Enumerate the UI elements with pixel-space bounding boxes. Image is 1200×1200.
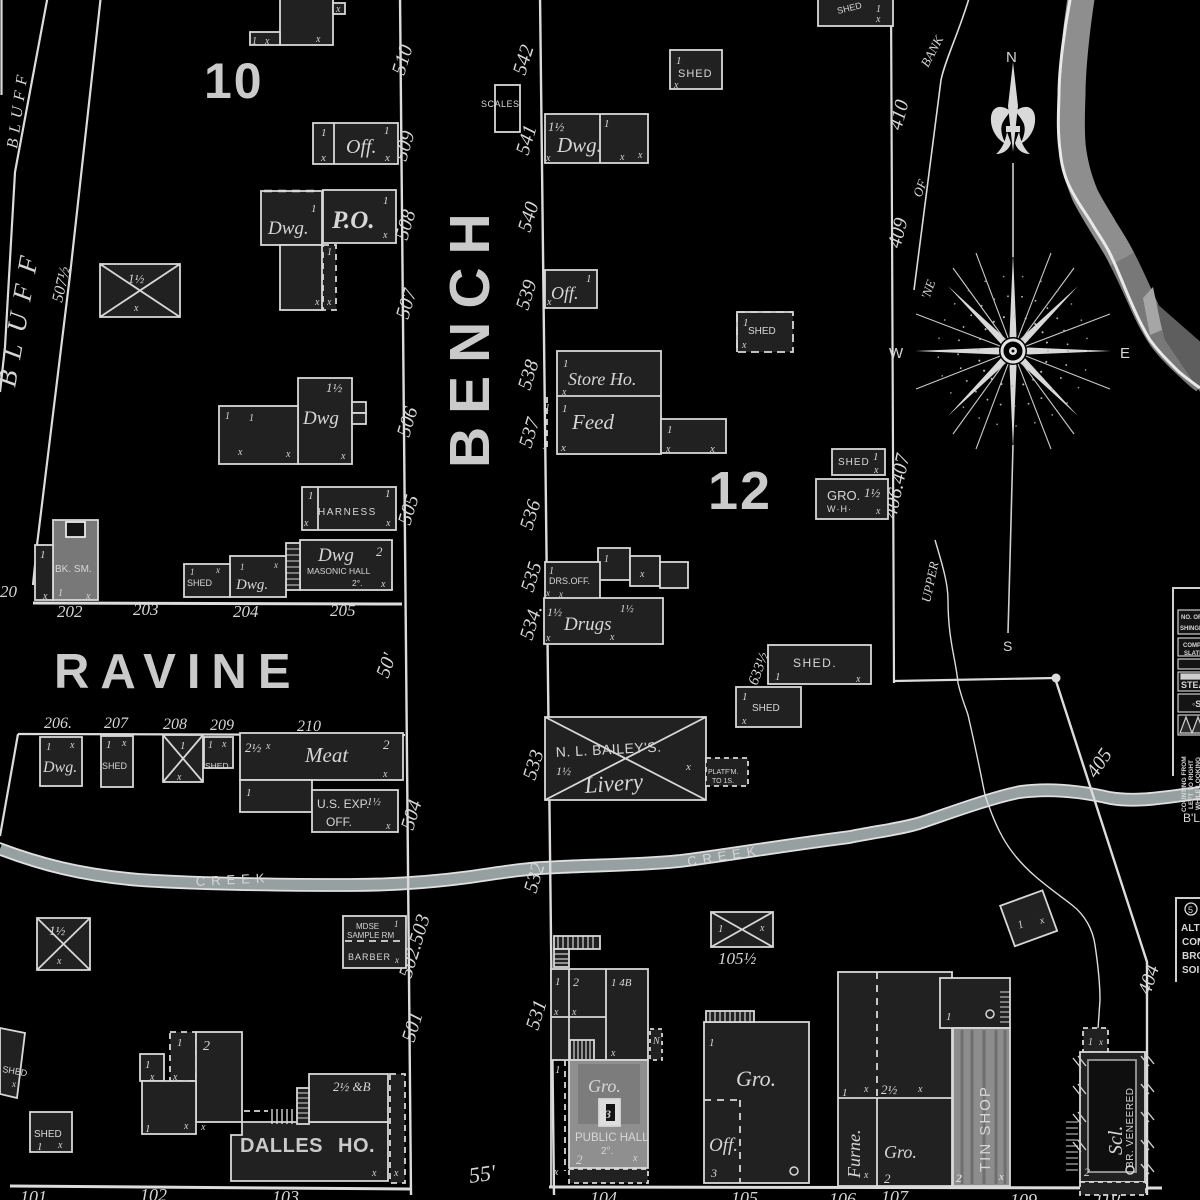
- svg-text:x: x: [315, 34, 321, 45]
- svg-text:SHED: SHED: [205, 761, 229, 771]
- svg-text:BR. VENEERED: BR. VENEERED: [1125, 1088, 1136, 1168]
- svg-text:x: x: [610, 1048, 616, 1059]
- svg-text:SHINGL: SHINGL: [1180, 626, 1200, 632]
- svg-text:Off.: Off.: [551, 283, 579, 303]
- svg-text:1: 1: [252, 36, 257, 47]
- svg-text:x: x: [335, 4, 341, 15]
- svg-text:1: 1: [1088, 1037, 1093, 1048]
- svg-text:Dwg.: Dwg.: [235, 577, 268, 593]
- svg-text:1½: 1½: [326, 380, 343, 395]
- svg-text:1: 1: [842, 1087, 848, 1099]
- svg-text:x: x: [546, 297, 552, 308]
- svg-text:E: E: [1120, 345, 1130, 362]
- svg-text:Dwg.: Dwg.: [42, 759, 77, 776]
- svg-text:RAVINE: RAVINE: [54, 645, 302, 699]
- svg-text:x: x: [215, 565, 220, 575]
- svg-text:1: 1: [604, 118, 610, 130]
- svg-text:x: x: [609, 632, 615, 643]
- svg-text:1 4B: 1 4B: [611, 977, 632, 989]
- svg-text:P.O.: P.O.: [331, 207, 375, 234]
- svg-text:1: 1: [946, 1011, 952, 1023]
- svg-text:12: 12: [708, 461, 772, 521]
- svg-text:x: x: [558, 589, 563, 599]
- svg-text:x: x: [863, 1170, 869, 1181]
- svg-text:x: x: [326, 297, 332, 308]
- svg-text:x: x: [542, 441, 547, 451]
- svg-text:x: x: [221, 739, 227, 750]
- svg-text:x: x: [11, 1079, 16, 1089]
- svg-text:2½ &B: 2½ &B: [333, 1079, 371, 1094]
- svg-text:SHED: SHED: [838, 457, 870, 468]
- svg-text:x: x: [42, 591, 48, 602]
- svg-text:ALT: ALT: [1181, 923, 1200, 934]
- svg-text:N: N: [652, 1036, 661, 1047]
- svg-text:1½: 1½: [128, 271, 145, 286]
- svg-text:SHED: SHED: [187, 578, 213, 588]
- svg-text:x: x: [545, 588, 550, 598]
- svg-text:1: 1: [37, 1141, 43, 1153]
- svg-text:2°.: 2°.: [601, 1146, 613, 1157]
- svg-text:Feed: Feed: [571, 410, 614, 434]
- svg-text:MDSE: MDSE: [356, 922, 379, 931]
- svg-text:x: x: [553, 1007, 559, 1018]
- svg-text:x: x: [264, 36, 270, 47]
- svg-text:1: 1: [190, 567, 195, 577]
- svg-text:BARBER: BARBER: [348, 952, 391, 962]
- svg-text:Drugs: Drugs: [563, 614, 612, 635]
- svg-text:1½: 1½: [864, 485, 881, 500]
- svg-text:x: x: [285, 449, 291, 460]
- svg-text:x: x: [382, 769, 388, 780]
- svg-text:1: 1: [385, 488, 391, 500]
- svg-text:x: x: [998, 1172, 1004, 1183]
- svg-text:Dwg.: Dwg.: [267, 218, 309, 239]
- svg-text:Scl.: Scl.: [1105, 1126, 1127, 1155]
- svg-text:LEFT TO RIGHT: LEFT TO RIGHT: [1188, 760, 1195, 809]
- svg-text:1: 1: [667, 424, 673, 436]
- svg-text:1: 1: [240, 562, 245, 572]
- svg-text:Gro.: Gro.: [736, 1066, 776, 1091]
- svg-text:x: x: [875, 14, 881, 25]
- svg-text:COMP: COMP: [1183, 643, 1200, 649]
- svg-text:2: 2: [573, 975, 579, 989]
- svg-text:SHED: SHED: [752, 703, 780, 714]
- svg-text:Dwg: Dwg: [302, 408, 339, 429]
- svg-text:104.: 104.: [590, 1188, 622, 1200]
- svg-text:B'L: B'L: [1183, 811, 1200, 825]
- svg-text:x: x: [237, 447, 243, 458]
- svg-text:x: x: [303, 518, 309, 529]
- svg-text:1: 1: [308, 490, 314, 502]
- svg-text:SHED: SHED: [34, 1129, 62, 1140]
- svg-text:2½: 2½: [881, 1082, 898, 1097]
- svg-text:x: x: [545, 633, 551, 644]
- svg-text:1: 1: [742, 691, 748, 703]
- svg-text:1: 1: [604, 554, 609, 565]
- svg-text:Dwg: Dwg: [317, 545, 354, 566]
- svg-text:x: x: [553, 1167, 559, 1178]
- svg-text:Dwg.: Dwg.: [556, 133, 602, 157]
- svg-text:x: x: [69, 740, 75, 751]
- svg-text:106: 106: [829, 1189, 856, 1200]
- svg-text:x: x: [673, 80, 679, 91]
- svg-text:x: x: [873, 465, 879, 476]
- svg-text:203: 203: [133, 600, 159, 619]
- svg-text:x: x: [917, 1084, 923, 1095]
- svg-text:209: 209: [210, 717, 234, 734]
- svg-text:1: 1: [246, 787, 252, 799]
- svg-text:x: x: [176, 772, 182, 783]
- svg-text:x: x: [741, 716, 747, 727]
- svg-text:2: 2: [576, 1152, 583, 1167]
- svg-text:1: 1: [145, 1123, 151, 1135]
- svg-text:x: x: [741, 340, 747, 351]
- svg-text:S: S: [1003, 638, 1012, 654]
- svg-text:202: 202: [57, 602, 83, 621]
- svg-text:1: 1: [563, 358, 569, 370]
- svg-text:x: x: [384, 152, 390, 164]
- svg-text:1: 1: [321, 127, 327, 139]
- svg-text:Off.: Off.: [346, 136, 377, 158]
- svg-text:3: 3: [710, 1166, 717, 1180]
- svg-text:x: x: [340, 451, 346, 462]
- svg-text:x: x: [133, 303, 139, 314]
- svg-text:x: x: [183, 1121, 189, 1132]
- svg-text:1: 1: [46, 741, 52, 753]
- svg-text:SHED.: SHED.: [793, 656, 837, 670]
- svg-text:x: x: [385, 821, 391, 832]
- svg-text:2: 2: [376, 544, 383, 559]
- svg-text:1: 1: [545, 403, 550, 414]
- svg-text:2: 2: [1084, 1165, 1090, 1179]
- svg-text:Gro.: Gro.: [884, 1142, 917, 1162]
- svg-text:COUNTING FROM: COUNTING FROM: [1181, 756, 1188, 812]
- svg-text:208: 208: [163, 716, 187, 733]
- svg-text:x: x: [759, 923, 765, 934]
- svg-text:205: 205: [330, 601, 356, 620]
- svg-text:BRO: BRO: [1182, 951, 1200, 962]
- svg-text:x: x: [85, 591, 91, 602]
- svg-text:x: x: [57, 1140, 63, 1151]
- svg-text:HO.: HO.: [338, 1135, 375, 1157]
- svg-text:1: 1: [311, 203, 317, 215]
- svg-text:1: 1: [383, 195, 389, 207]
- svg-text:1: 1: [394, 919, 399, 929]
- svg-text:PLATF'M.: PLATF'M.: [708, 769, 738, 776]
- svg-text:x: x: [172, 1072, 178, 1083]
- svg-text:1: 1: [208, 740, 213, 751]
- svg-text:W·H·: W·H·: [827, 504, 852, 514]
- svg-text:x: x: [265, 741, 271, 752]
- svg-text:1: 1: [555, 976, 561, 988]
- svg-text:1: 1: [249, 413, 254, 424]
- svg-text:x: x: [709, 443, 715, 455]
- svg-text:Furne.: Furne.: [844, 1130, 864, 1180]
- svg-text:MASONIC HALL: MASONIC HALL: [307, 566, 371, 576]
- svg-text:x: x: [637, 150, 643, 161]
- svg-text:Meat: Meat: [304, 743, 349, 767]
- svg-text:WHILE LOOKING: WHILE LOOKING: [1195, 757, 1200, 810]
- svg-text:x: x: [320, 152, 326, 164]
- svg-text:x: x: [639, 569, 645, 580]
- svg-text:SCALES: SCALES: [481, 99, 520, 109]
- svg-text:2: 2: [955, 1171, 962, 1185]
- svg-text:x: x: [273, 560, 278, 570]
- svg-text:NO. OF: NO. OF: [1181, 615, 1200, 621]
- svg-text:1½: 1½: [49, 923, 66, 938]
- svg-text:1: 1: [180, 740, 186, 752]
- svg-text:1½: 1½: [548, 119, 565, 134]
- svg-text:DALLES: DALLES: [240, 1135, 323, 1157]
- svg-text:109: 109: [1010, 1190, 1037, 1200]
- svg-text:TIN SHOP: TIN SHOP: [977, 1085, 994, 1172]
- svg-text:DRS.OFF.: DRS.OFF.: [549, 576, 590, 586]
- svg-text:1½: 1½: [367, 796, 381, 808]
- svg-text:Off.: Off.: [709, 1135, 738, 1156]
- svg-text:x: x: [382, 230, 388, 241]
- svg-text:Store Ho.: Store Ho.: [568, 369, 636, 389]
- svg-text:SHED: SHED: [678, 68, 713, 80]
- svg-text:x: x: [394, 955, 399, 965]
- svg-text:1: 1: [384, 125, 390, 137]
- svg-text:x: x: [875, 506, 881, 517]
- svg-text:GRO.: GRO.: [827, 488, 860, 503]
- svg-text:x: x: [121, 738, 127, 749]
- svg-text:1: 1: [145, 1059, 151, 1071]
- svg-text:SLATE: SLATE: [1184, 651, 1200, 657]
- svg-text:2: 2: [203, 1039, 210, 1054]
- svg-text:1: 1: [225, 411, 230, 422]
- svg-text:x: x: [560, 442, 566, 454]
- svg-text:1: 1: [327, 247, 332, 258]
- svg-text:1: 1: [40, 549, 46, 561]
- svg-text:x: x: [200, 1122, 206, 1133]
- svg-text:1: 1: [718, 923, 724, 935]
- svg-text:x: x: [371, 1168, 377, 1179]
- svg-text:◦S: ◦S: [1192, 699, 1200, 709]
- svg-text:1: 1: [58, 588, 63, 599]
- svg-text:107: 107: [881, 1187, 909, 1200]
- svg-text:W: W: [889, 345, 904, 362]
- svg-text:103: 103: [272, 1187, 299, 1200]
- svg-text:SAMPLE RM: SAMPLE RM: [347, 931, 394, 940]
- svg-text:N: N: [1006, 49, 1017, 66]
- svg-text:x: x: [393, 1168, 399, 1179]
- svg-text:U.S. EXP.: U.S. EXP.: [317, 797, 369, 811]
- svg-text:COM: COM: [1182, 937, 1200, 948]
- svg-text:x: x: [385, 518, 391, 529]
- svg-text:2½: 2½: [245, 740, 262, 755]
- svg-text:Gro.: Gro.: [588, 1076, 621, 1096]
- svg-text:x: x: [571, 1007, 577, 1018]
- svg-text:1: 1: [562, 403, 568, 415]
- svg-text:BK. SM.: BK. SM.: [55, 564, 92, 575]
- svg-text:1: 1: [586, 273, 592, 285]
- svg-text:BENCH: BENCH: [438, 200, 502, 468]
- svg-text:x: x: [56, 956, 62, 967]
- svg-text:x: x: [619, 152, 625, 163]
- svg-text:1: 1: [873, 451, 879, 463]
- svg-text:102: 102: [140, 1185, 167, 1200]
- svg-text:1: 1: [709, 1037, 715, 1049]
- svg-text:x: x: [632, 1153, 638, 1164]
- svg-text:SHED: SHED: [748, 326, 776, 337]
- svg-text:TO 1S.: TO 1S.: [712, 778, 734, 785]
- svg-text:3: 3: [604, 1107, 611, 1121]
- svg-text:SHED: SHED: [102, 761, 128, 771]
- svg-text:55': 55': [467, 1159, 497, 1188]
- svg-text:1: 1: [775, 671, 781, 683]
- svg-text:2°.: 2°.: [352, 578, 363, 588]
- svg-text:STEA: STEA: [1181, 680, 1200, 690]
- svg-text:20: 20: [0, 582, 18, 601]
- svg-text:x: x: [855, 674, 861, 685]
- svg-text:101: 101: [20, 1187, 47, 1200]
- svg-text:10: 10: [204, 53, 264, 109]
- svg-text:PUBLIC HALL: PUBLIC HALL: [575, 1132, 649, 1144]
- svg-text:x: x: [545, 153, 551, 164]
- svg-text:206.: 206.: [44, 715, 72, 732]
- svg-text:1: 1: [555, 1064, 561, 1076]
- svg-text:1½: 1½: [620, 603, 634, 615]
- svg-text:105: 105: [731, 1188, 758, 1200]
- svg-text:2: 2: [383, 737, 390, 752]
- svg-text:1½: 1½: [547, 605, 562, 619]
- svg-text:x: x: [380, 579, 386, 590]
- svg-text:105½: 105½: [718, 949, 757, 968]
- svg-text:x: x: [665, 444, 671, 455]
- svg-text:5: 5: [1188, 905, 1193, 915]
- svg-text:x: x: [863, 1084, 869, 1095]
- svg-text:1: 1: [676, 55, 682, 67]
- svg-text:1½: 1½: [556, 764, 571, 778]
- svg-text:x: x: [314, 297, 320, 308]
- svg-text:2: 2: [884, 1171, 891, 1186]
- svg-text:Livery: Livery: [583, 769, 645, 798]
- svg-text:x: x: [1098, 1037, 1103, 1047]
- svg-text:x: x: [685, 761, 691, 773]
- svg-text:1: 1: [177, 1037, 183, 1049]
- svg-text:SOI: SOI: [1182, 965, 1199, 976]
- svg-text:207: 207: [104, 715, 129, 732]
- svg-text:204: 204: [233, 602, 259, 621]
- svg-text:OFF.: OFF.: [326, 815, 352, 829]
- svg-text:x: x: [561, 387, 567, 398]
- svg-text:1: 1: [106, 739, 112, 751]
- svg-text:HARNESS: HARNESS: [318, 507, 377, 518]
- svg-text:x: x: [149, 1072, 155, 1083]
